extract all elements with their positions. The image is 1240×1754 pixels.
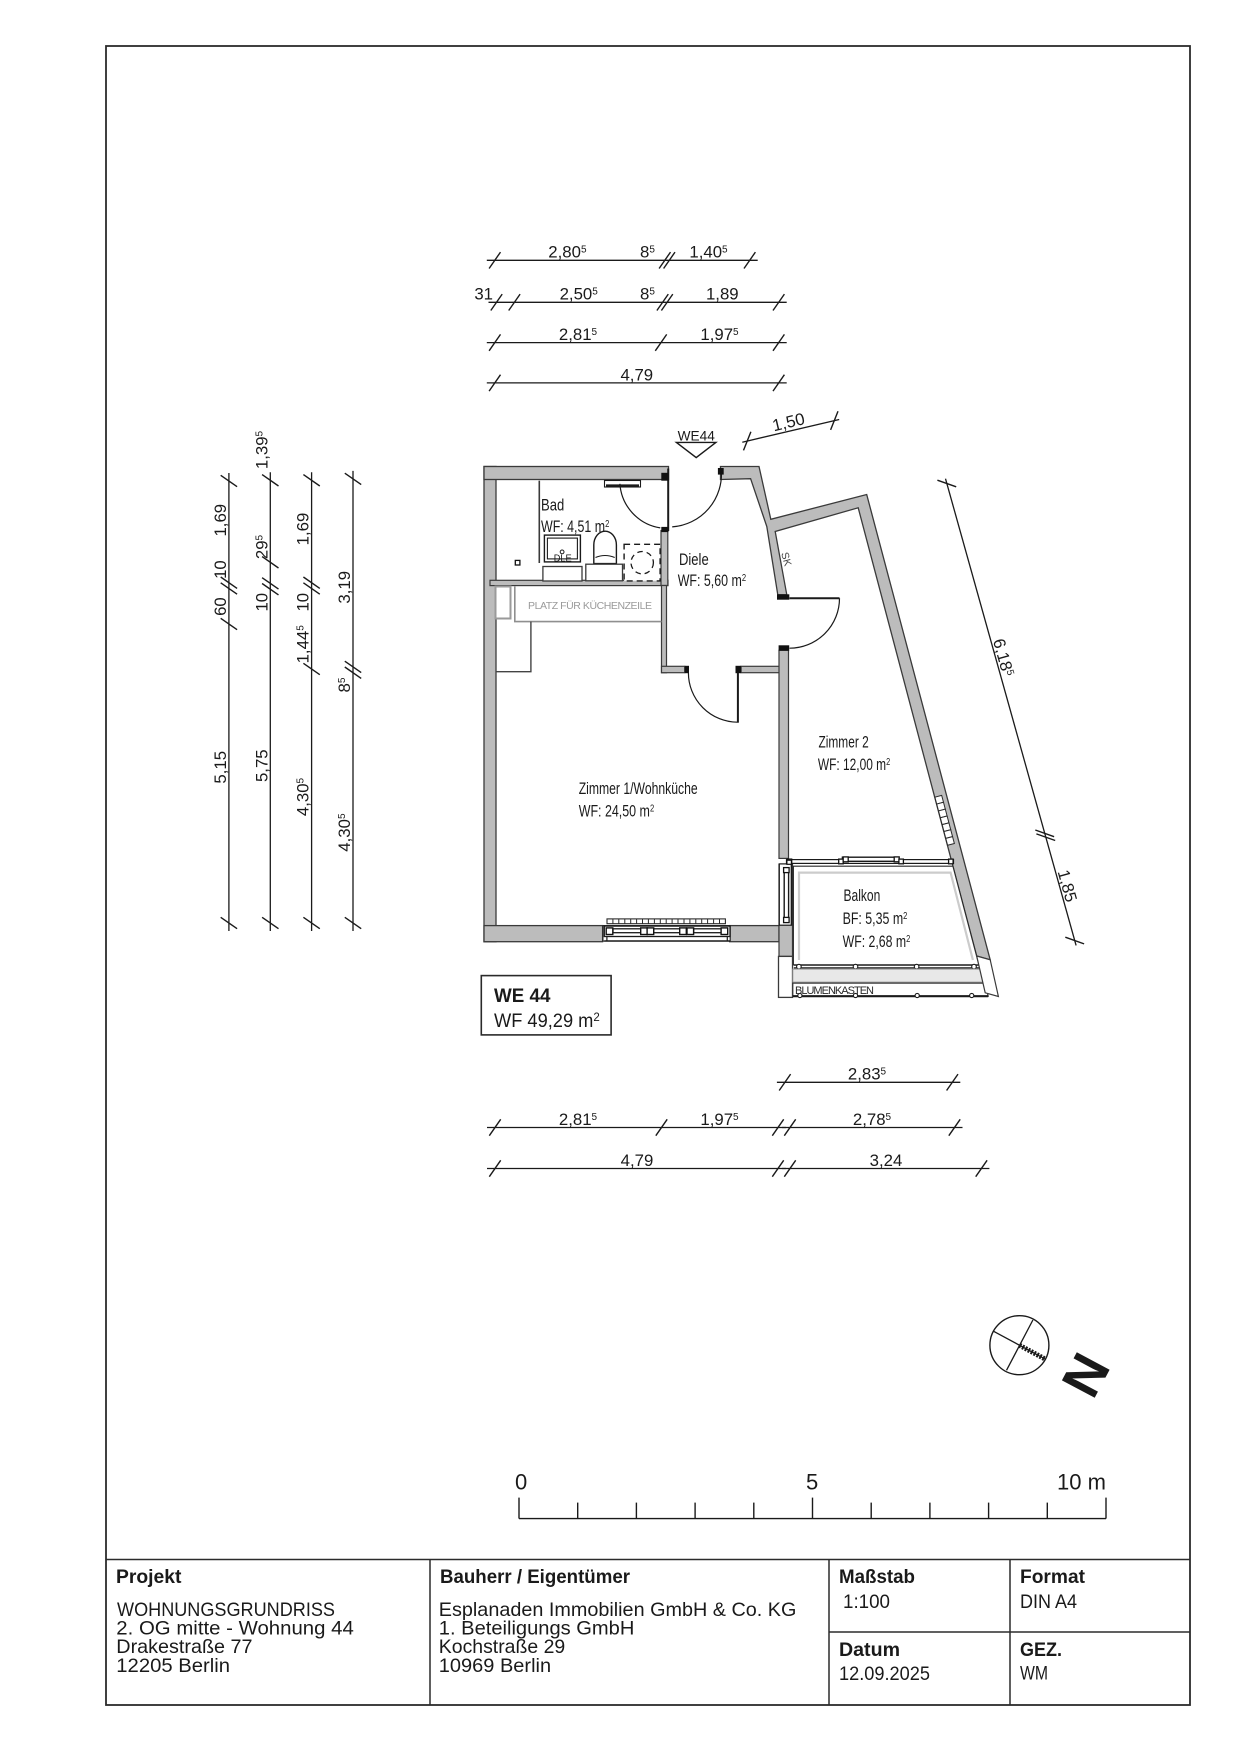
svg-text:4,79: 4,79 xyxy=(621,1151,654,1170)
svg-text:12.09.2025: 12.09.2025 xyxy=(839,1663,930,1685)
svg-text:WF 49,29 m2: WF 49,29 m2 xyxy=(494,1010,600,1032)
svg-text:Balkon: Balkon xyxy=(844,887,881,905)
svg-text:12205 Berlin: 12205 Berlin xyxy=(116,1655,230,1677)
svg-text:Zimmer 2: Zimmer 2 xyxy=(819,734,869,752)
svg-text:WE44: WE44 xyxy=(678,429,716,444)
svg-text:Diele: Diele xyxy=(679,551,709,569)
svg-text:PLATZ FÜR KÜCHENZEILE: PLATZ FÜR KÜCHENZEILE xyxy=(528,600,652,612)
svg-text:WF: 5,60 m2: WF: 5,60 m2 xyxy=(678,572,747,590)
svg-text:GEZ.: GEZ. xyxy=(1020,1639,1062,1661)
svg-text:1,89: 1,89 xyxy=(706,285,739,304)
svg-text:WM: WM xyxy=(1020,1663,1048,1685)
svg-text:10: 10 xyxy=(211,560,230,579)
svg-text:BLUMENKASTEN: BLUMENKASTEN xyxy=(795,985,874,997)
svg-text:10: 10 xyxy=(252,593,271,612)
svg-text:DIN A4: DIN A4 xyxy=(1020,1591,1077,1613)
svg-text:10: 10 xyxy=(294,593,313,612)
svg-text:4,79: 4,79 xyxy=(620,365,653,384)
svg-text:Zimmer 1/Wohnküche: Zimmer 1/Wohnküche xyxy=(579,780,698,798)
svg-text:5,75: 5,75 xyxy=(252,749,271,782)
svg-text:BF: 5,35 m2: BF: 5,35 m2 xyxy=(843,910,908,928)
svg-text:3,24: 3,24 xyxy=(870,1151,903,1170)
svg-text:Projekt: Projekt xyxy=(116,1566,182,1588)
svg-text:Bad: Bad xyxy=(541,497,564,515)
svg-text:0: 0 xyxy=(515,1470,527,1495)
svg-text:1,69: 1,69 xyxy=(294,513,313,546)
svg-text:Format: Format xyxy=(1020,1566,1085,1588)
svg-text:Maßstab: Maßstab xyxy=(839,1566,915,1588)
svg-text:Datum: Datum xyxy=(839,1639,900,1661)
svg-text:31: 31 xyxy=(474,285,493,304)
svg-text:WF: 2,68 m2: WF: 2,68 m2 xyxy=(843,933,911,951)
svg-text:WF: 24,50 m2: WF: 24,50 m2 xyxy=(579,803,655,821)
svg-text:3,19: 3,19 xyxy=(335,571,354,604)
svg-text:10969 Berlin: 10969 Berlin xyxy=(439,1655,551,1677)
svg-text:WF: 4,51 m2: WF: 4,51 m2 xyxy=(541,518,610,536)
svg-text:60: 60 xyxy=(211,597,230,616)
svg-text:10 m: 10 m xyxy=(1057,1470,1106,1495)
svg-text:DLE: DLE xyxy=(554,554,572,565)
svg-text:WE 44: WE 44 xyxy=(494,986,551,1007)
svg-text:5: 5 xyxy=(806,1470,818,1495)
svg-text:Bauherr / Eigentümer: Bauherr / Eigentümer xyxy=(440,1566,630,1588)
svg-text:1,69: 1,69 xyxy=(211,504,230,537)
svg-text:1:100: 1:100 xyxy=(843,1591,890,1613)
svg-text:5,15: 5,15 xyxy=(211,751,230,784)
svg-text:WF: 12,00 m2: WF: 12,00 m2 xyxy=(818,756,891,774)
